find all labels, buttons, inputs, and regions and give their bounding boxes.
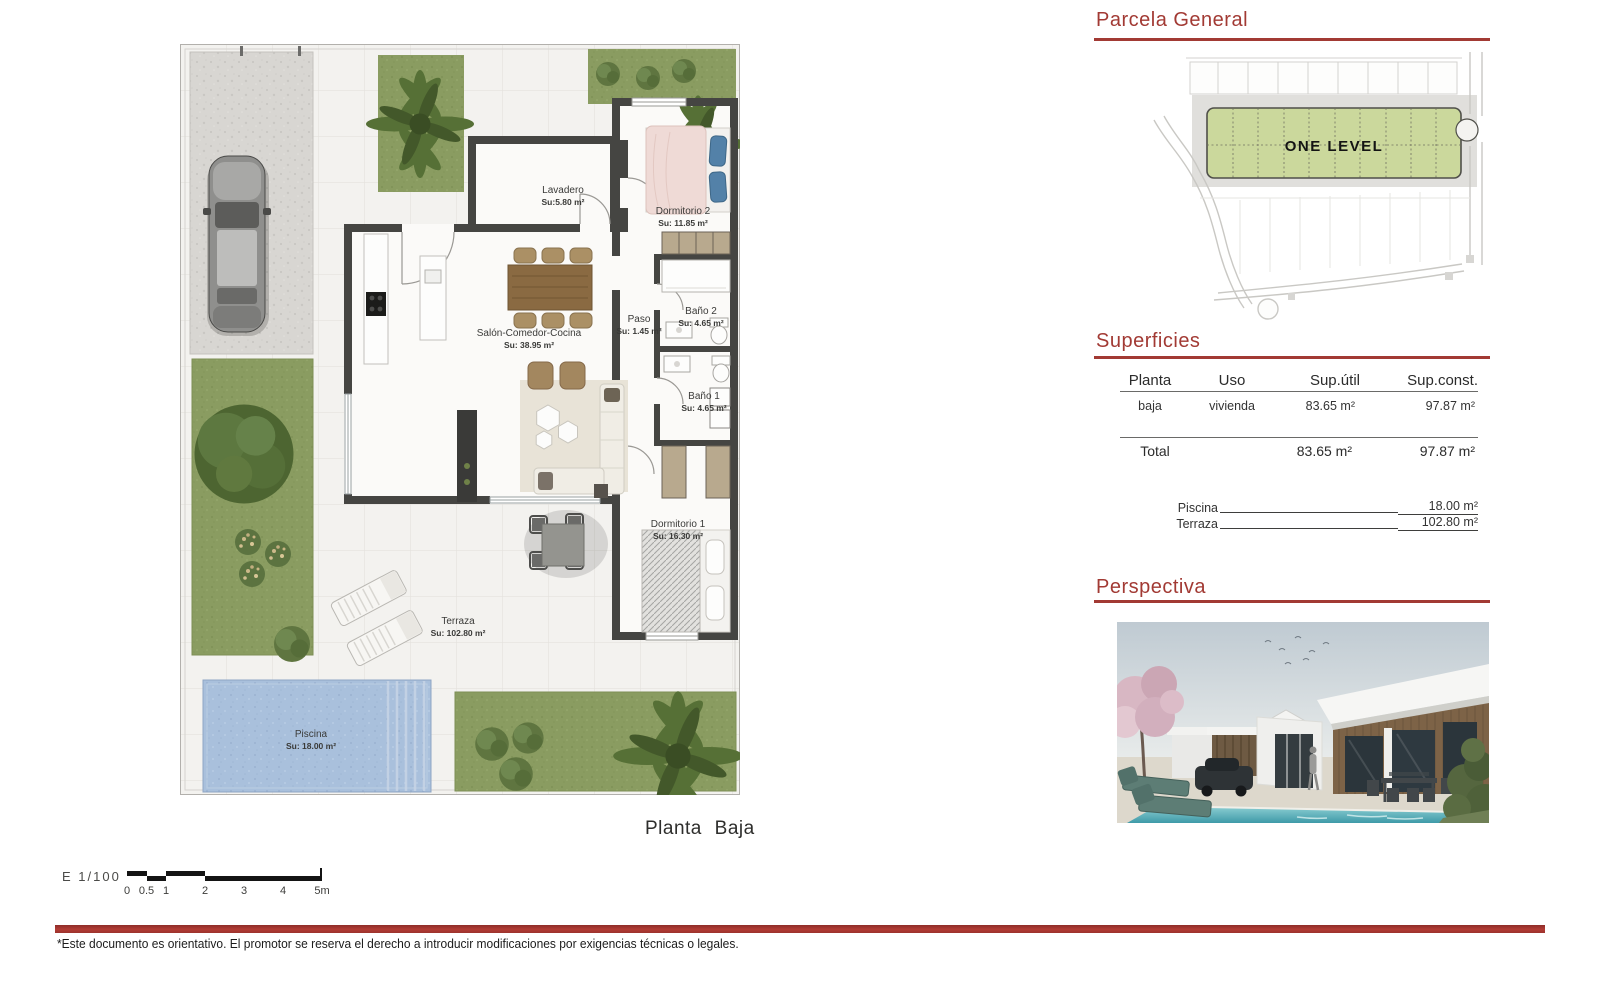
scale-label: E 1/100 bbox=[62, 869, 121, 884]
perspectiva-render bbox=[1117, 622, 1489, 823]
room-label-salon: Salón-Comedor-CocinaSu: 38.95 m² bbox=[477, 327, 582, 351]
room-label-paso: PasoSu: 1.45 m² bbox=[616, 313, 661, 337]
extra-row-terraza: Terraza 102.80 m² bbox=[1162, 515, 1478, 531]
superficies-title: Superficies bbox=[1096, 330, 1200, 353]
floor-plan-svg bbox=[180, 44, 740, 795]
cell-planta: baja bbox=[1120, 399, 1180, 413]
cell-uso: vivienda bbox=[1196, 399, 1268, 413]
col-header-sup-util: Sup.útil bbox=[1280, 372, 1360, 389]
parcela-map-svg: ONE LEVEL bbox=[1140, 50, 1500, 330]
dining-set bbox=[508, 248, 592, 328]
room-label-dormitorio-1: Dormitorio 1Su: 16.30 m² bbox=[651, 518, 705, 542]
total-label: Total bbox=[1125, 443, 1185, 459]
lawn-left bbox=[192, 359, 313, 655]
scale-ticks: 0 0.5 1 2 3 4 5m bbox=[127, 885, 322, 899]
brochure-page: LavaderoSu:5.80 m² Dormitorio 2Su: 11.85… bbox=[0, 0, 1600, 988]
cell-sup-const: 97.87 m² bbox=[1375, 399, 1475, 413]
room-label-lavadero: LavaderoSu:5.80 m² bbox=[542, 184, 585, 208]
perspectiva-title: Perspectiva bbox=[1096, 576, 1206, 599]
room-label-bano-1: Baño 1Su: 4.65 m² bbox=[681, 390, 726, 414]
room-label-terraza: TerrazaSu: 102.80 m² bbox=[431, 615, 486, 639]
extra-row-piscina: Piscina 18.00 m² bbox=[1162, 499, 1478, 515]
room-label-dormitorio-2: Dormitorio 2Su: 11.85 m² bbox=[656, 205, 710, 229]
parcela-title: Parcela General bbox=[1096, 9, 1248, 32]
total-sup-util: 83.65 m² bbox=[1252, 443, 1352, 459]
total-sup-const: 97.87 m² bbox=[1370, 443, 1475, 459]
car-icon bbox=[203, 156, 271, 336]
plot-label: ONE LEVEL bbox=[1285, 138, 1384, 155]
cell-sup-util: 83.65 m² bbox=[1275, 399, 1355, 413]
col-header-sup-const: Sup.const. bbox=[1378, 372, 1478, 389]
perspectiva-rule bbox=[1094, 600, 1490, 603]
parcela-rule bbox=[1094, 38, 1490, 41]
outdoor-dining bbox=[524, 510, 608, 578]
scale-bar bbox=[127, 871, 322, 881]
room-label-piscina: PiscinaSu: 18.00 m² bbox=[286, 728, 336, 752]
superficies-rule bbox=[1094, 356, 1490, 359]
plan-caption: Planta Baja bbox=[645, 818, 755, 840]
col-header-planta: Planta bbox=[1120, 372, 1180, 389]
col-header-uso: Uso bbox=[1202, 372, 1262, 389]
table-total-line bbox=[1120, 437, 1478, 438]
table-header-line bbox=[1120, 391, 1478, 392]
footer-note: *Este documento es orientativo. El promo… bbox=[57, 937, 739, 951]
room-label-bano-2: Baño 2Su: 4.65 m² bbox=[678, 305, 723, 329]
footer-accent-bar bbox=[55, 925, 1545, 933]
tree-large bbox=[195, 405, 294, 504]
